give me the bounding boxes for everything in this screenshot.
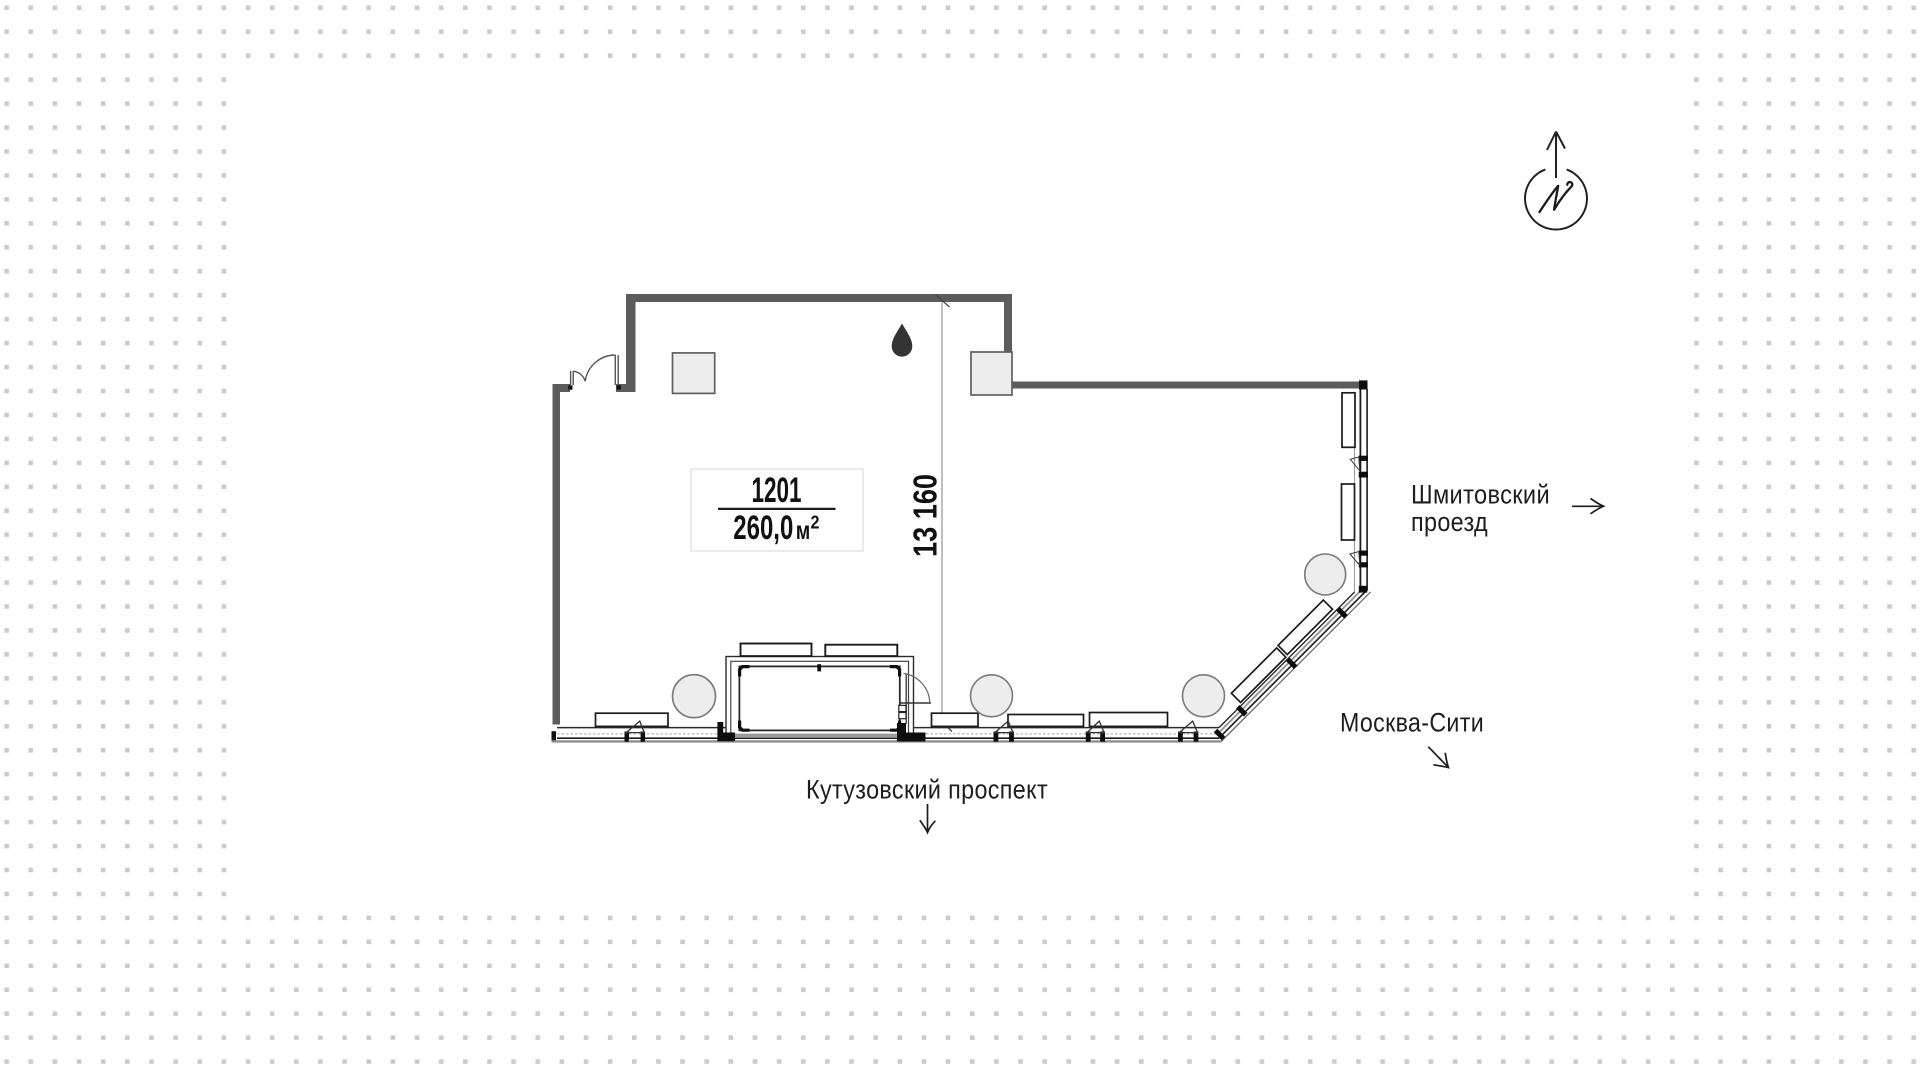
svg-text:13 160: 13 160 — [908, 474, 945, 557]
svg-text:260,0: 260,0 — [733, 509, 793, 547]
svg-text:Кутузовский проспект: Кутузовский проспект — [806, 774, 1048, 804]
svg-text:2: 2 — [811, 512, 820, 533]
svg-text:Москва-Сити: Москва-Сити — [1340, 708, 1484, 738]
svg-text:м: м — [796, 515, 811, 545]
svg-text:1201: 1201 — [752, 471, 802, 510]
svg-text:Шмитовский: Шмитовский — [1411, 480, 1550, 510]
svg-text:проезд: проезд — [1411, 507, 1488, 537]
